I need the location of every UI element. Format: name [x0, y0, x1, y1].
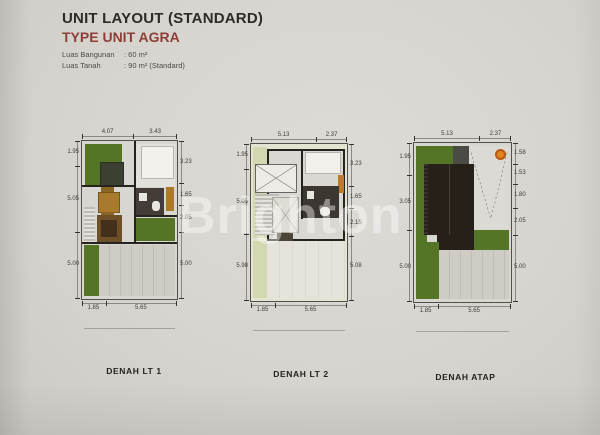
spec-label: Luas Bangunan: [62, 50, 124, 59]
floorplan-lt1: 4.07 3.43 1.95 5.05 5.00 3.23 1.65 2.05 …: [81, 140, 178, 300]
dimension-label: 2.37: [326, 132, 338, 138]
spec-row: Luas Tanah : 90 m² (Standard): [62, 61, 263, 70]
overall-dimension-line: [416, 331, 509, 332]
spec-label: Luas Tanah: [62, 61, 124, 70]
dimension-label: 5.08: [350, 263, 367, 269]
roof-extension: [437, 235, 474, 249]
unit-type-title: TYPE UNIT AGRA: [62, 29, 263, 45]
overall-dimension-line: [84, 328, 175, 329]
roof-eave: [424, 164, 428, 236]
dimension-label: 1.65: [180, 192, 197, 198]
garden-area: [416, 242, 439, 299]
garden-area: [253, 241, 267, 298]
dimension-ticks: [244, 144, 249, 301]
bed: [141, 146, 174, 180]
dimension-label: 1.85: [257, 307, 269, 313]
floorplan-lt2: 5.13 2.37 1.95 5.05 5.98 3.23 1.65 2.15 …: [250, 143, 348, 302]
toilet: [320, 207, 330, 216]
overall-dimension-line: [253, 330, 345, 331]
dimension-ticks: [82, 134, 177, 139]
sink: [139, 193, 147, 201]
dimension-label: 5.00: [62, 261, 79, 267]
spec-value: : 60 m²: [124, 50, 147, 59]
plan-caption-lt1: DENAH LT 1: [84, 366, 184, 376]
plan-caption-lt2: DENAH LT 2: [251, 369, 351, 379]
dimension-label: 1.85: [88, 305, 100, 311]
dining-table: [98, 192, 120, 213]
cabinet: [166, 187, 175, 211]
garden-area: [136, 218, 175, 240]
dimension-label: 5.05: [62, 196, 79, 202]
dimension-label: 4.07: [102, 129, 114, 135]
spec-row: Luas Bangunan : 60 m²: [62, 50, 263, 59]
dimension-label: 3.43: [149, 129, 161, 135]
dimension-label: 3.05: [394, 199, 411, 205]
dimension-label: 1.53: [514, 170, 531, 176]
dimension-label: 3.23: [350, 161, 367, 167]
dimension-ticks: [75, 141, 80, 299]
dimension-label: 5.00: [180, 261, 197, 267]
brochure-page: UNIT LAYOUT (STANDARD) TYPE UNIT AGRA Lu…: [0, 0, 600, 435]
spec-value: : 90 m² (Standard): [124, 61, 185, 70]
dimension-ticks: [407, 143, 412, 302]
dimension-label: 1.58: [514, 150, 531, 156]
wall: [82, 185, 134, 187]
dimension-label: 1.85: [420, 308, 432, 314]
spec-list: Luas Bangunan : 60 m² Luas Tanah : 90 m²…: [62, 50, 263, 70]
sink: [307, 191, 315, 199]
dimension-label: 5.00: [514, 264, 531, 270]
dimension-label: 1.95: [62, 149, 79, 155]
void-cross-lines: [256, 165, 296, 191]
bedroom-rug: [272, 197, 299, 233]
stairs: [84, 207, 95, 242]
carport-driveway: [99, 245, 175, 296]
dimension-label: 5.00: [394, 264, 411, 270]
dimension-label: 1.95: [394, 154, 411, 160]
roof-ridge-line: [449, 164, 450, 236]
dimension-label: 5.13: [278, 132, 290, 138]
wall: [134, 215, 177, 217]
plan-caption-atap: DENAH ATAP: [413, 372, 518, 382]
dimension-label: 2.37: [490, 131, 502, 137]
dimension-label: 1.65: [350, 194, 367, 200]
toilet: [152, 201, 160, 210]
dimension-label: 2.05: [514, 218, 531, 224]
sofa: [101, 220, 117, 237]
dimension-label: 2.15: [350, 220, 367, 226]
wall: [82, 242, 177, 244]
rug-cross-lines: [273, 198, 298, 232]
bed: [305, 152, 342, 174]
dimension-label: 5.98: [231, 263, 248, 269]
page-title: UNIT LAYOUT (STANDARD): [62, 10, 263, 27]
garden-area: [84, 245, 99, 296]
dimension-label: 5.65: [468, 308, 480, 314]
carport-driveway: [439, 250, 509, 299]
water-tank-icon: [495, 149, 506, 160]
dimension-label: 5.65: [135, 305, 147, 311]
dimension-label: 1.95: [231, 152, 248, 158]
floorplan-atap: 5.13 2.37 1.95 3.05 5.00 1.58 1.53 1.80 …: [413, 142, 512, 303]
dimension-label: 2.05: [180, 215, 197, 221]
lower-roof-area: [267, 241, 345, 298]
planter-box: [100, 162, 124, 186]
dimension-label: 1.80: [514, 192, 531, 198]
header: UNIT LAYOUT (STANDARD) TYPE UNIT AGRA Lu…: [62, 10, 263, 70]
wall: [134, 141, 136, 242]
void-area: [255, 164, 297, 192]
dimension-label: 5.65: [305, 307, 317, 313]
dimension-label: 5.05: [231, 199, 248, 205]
dimension-label: 5.13: [441, 131, 453, 137]
dimension-label: 3.23: [180, 159, 197, 165]
